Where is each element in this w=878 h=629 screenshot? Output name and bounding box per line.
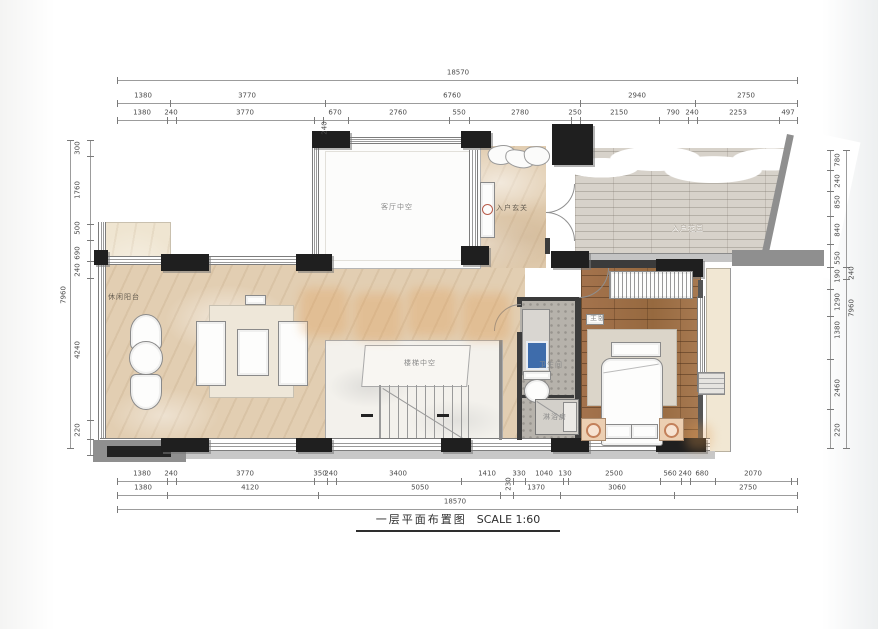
drawing-scale: SCALE 1:60 xyxy=(477,513,540,526)
room-label: 客厅中空 xyxy=(381,202,413,212)
room-label: 入户玄关 xyxy=(496,203,528,213)
room-label: 主卧 xyxy=(590,313,606,323)
drawing-title-block: 一层平面布置图SCALE 1:60 xyxy=(356,511,560,532)
floorplan-canvas: 1857013803770676029402750138024037706702… xyxy=(0,0,878,629)
room-label: 楼梯中空 xyxy=(404,358,436,368)
room-label: 入户花园 xyxy=(672,223,704,233)
room-label-layer: 客厅中空入户玄关入户花园休闲阳台楼梯中空主卧卫生间淋浴房 xyxy=(0,0,878,629)
room-label: 卫生间 xyxy=(539,360,563,370)
room-label: 休闲阳台 xyxy=(108,292,140,302)
drawing-title: 一层平面布置图 xyxy=(376,513,467,526)
room-label: 淋浴房 xyxy=(543,412,567,422)
